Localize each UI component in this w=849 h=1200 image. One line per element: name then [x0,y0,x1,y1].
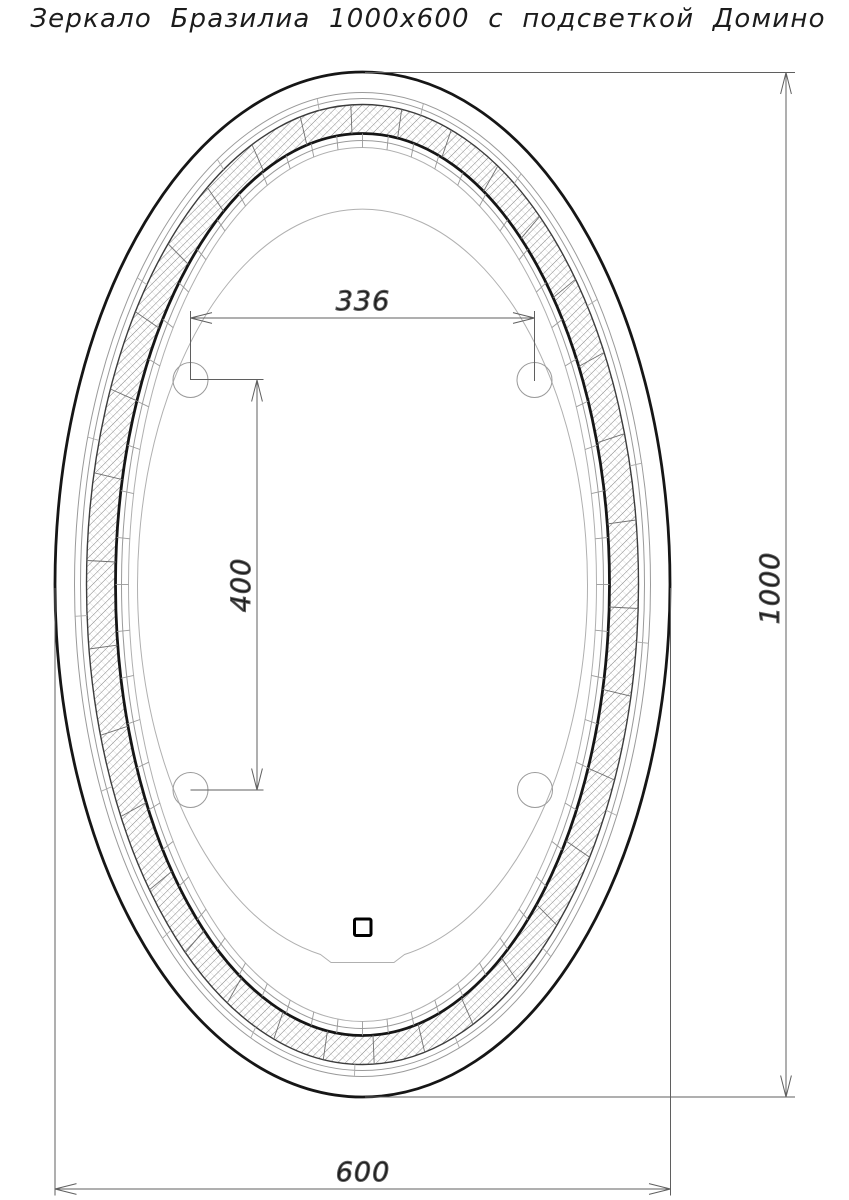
dimension-value: 1000 [755,552,786,625]
dimension-value: 600 [336,1157,391,1188]
technical-drawing-canvas: Зеркало Бразилиа 1000х600 с подсветкой Д… [0,0,849,1200]
dimension-value: 400 [226,558,257,613]
drawing-title: Зеркало Бразилиа 1000х600 с подсветкой Д… [30,4,825,34]
dimension-value: 336 [336,286,391,317]
touch-switch-icon [355,919,372,936]
technical-drawing-page: Зеркало Бразилиа 1000х600 с подсветкой Д… [0,0,849,1200]
